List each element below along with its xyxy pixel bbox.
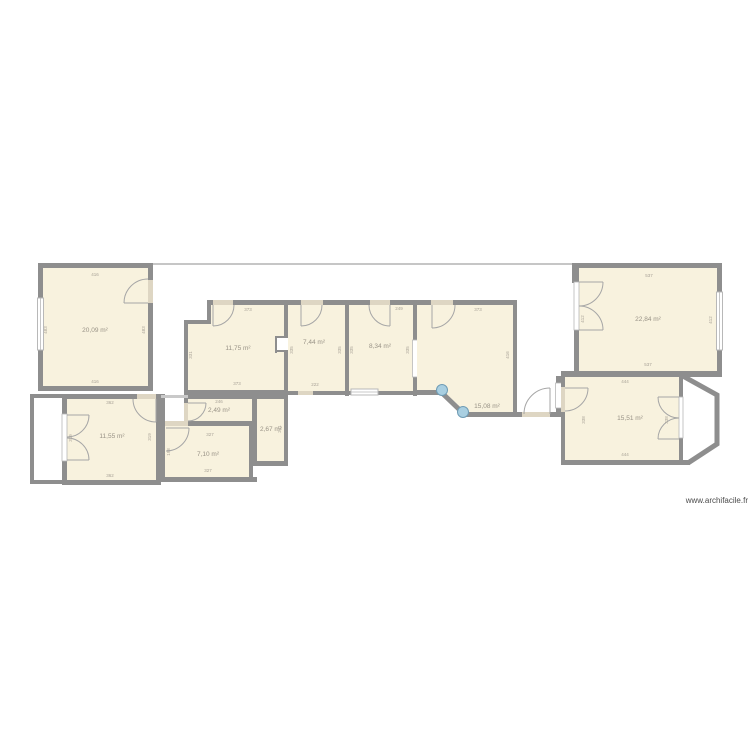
dim-label: 319 bbox=[68, 434, 73, 442]
dim-label: 362 bbox=[106, 473, 114, 478]
dim-label: 373 bbox=[474, 307, 482, 312]
dim-label: 537 bbox=[644, 362, 652, 367]
glass-door-glyph bbox=[437, 385, 448, 396]
door-opening bbox=[522, 412, 550, 417]
window bbox=[38, 298, 44, 350]
room-c-area-label: 2,49 m² bbox=[208, 407, 231, 414]
window bbox=[717, 292, 723, 350]
door-opening bbox=[370, 300, 390, 305]
room-i-area-label: 15,08 m² bbox=[474, 403, 500, 410]
dim-label: 416 bbox=[505, 351, 510, 359]
window bbox=[351, 389, 378, 395]
window bbox=[413, 340, 418, 377]
dim-label: 537 bbox=[645, 273, 653, 278]
room-b-area-label: 11,55 m² bbox=[99, 433, 125, 440]
dim-label: 335 bbox=[405, 346, 410, 354]
door-opening bbox=[165, 421, 188, 426]
room-e-area-label: 7,10 m² bbox=[197, 451, 220, 458]
floor-plan-page: 20,09 m² 416 416 483 483 11,55 m² 362 36… bbox=[0, 0, 750, 750]
dim-label: 412 bbox=[708, 316, 713, 324]
dim-label: 483 bbox=[141, 326, 146, 334]
dim-label: 338 bbox=[664, 416, 669, 424]
room-f: 11,75 m² 373 373 331 bbox=[184, 300, 294, 395]
door-opening bbox=[561, 387, 565, 412]
door-opening bbox=[148, 280, 153, 303]
dim-label: 241 bbox=[277, 425, 282, 433]
dim-label: 246 bbox=[215, 399, 223, 404]
room-g: 7,44 m² 222 335 335 bbox=[284, 300, 349, 396]
dim-label: 335 bbox=[289, 346, 294, 354]
dim-label: 198 bbox=[166, 448, 171, 456]
room-a-area-label: 20,09 m² bbox=[82, 327, 108, 334]
room-l: 22,84 m² 537 537 412 412 bbox=[561, 263, 723, 377]
rooms-cde: 2,49 m² 246 2,67 m² 241 7,10 m² 327 327 … bbox=[161, 394, 288, 482]
dim-label: 483 bbox=[43, 326, 48, 334]
room-l-area-label: 22,84 m² bbox=[635, 316, 661, 323]
dim-label: 335 bbox=[349, 346, 354, 354]
dim-label: 331 bbox=[188, 351, 193, 359]
door-opening bbox=[184, 403, 188, 421]
dim-label: 416 bbox=[91, 272, 99, 277]
glass-door-glyph bbox=[458, 407, 469, 418]
french-door-opening bbox=[574, 282, 579, 330]
room-i-floor bbox=[417, 305, 513, 412]
dim-label: 416 bbox=[91, 379, 99, 384]
dim-label: 362 bbox=[106, 400, 114, 405]
dim-label: 335 bbox=[337, 346, 342, 354]
dim-label: 373 bbox=[233, 381, 241, 386]
room-a: 20,09 m² 416 416 483 483 bbox=[38, 263, 154, 391]
room-h: 8,34 m² 249 335 335 bbox=[345, 300, 418, 396]
door-opening bbox=[301, 300, 323, 305]
french-door-opening bbox=[679, 397, 683, 438]
dim-label: 222 bbox=[311, 382, 319, 387]
floor-plan-canvas: 20,09 m² 416 416 483 483 11,55 m² 362 36… bbox=[0, 0, 750, 750]
room-b: 11,55 m² 362 362 319 319 bbox=[62, 394, 161, 485]
door-opening bbox=[431, 300, 453, 305]
room-n-walls bbox=[30, 394, 66, 484]
terrace-walls bbox=[681, 375, 717, 463]
watermark: www.archifacile.fr bbox=[685, 496, 749, 505]
room-k-area-label: 15,51 m² bbox=[617, 415, 643, 422]
room-k: 15,51 m² 444 444 338 338 bbox=[561, 377, 690, 465]
window bbox=[556, 383, 562, 408]
room-f-area-label: 11,75 m² bbox=[225, 345, 251, 352]
dim-label: 444 bbox=[621, 379, 629, 384]
french-door-opening bbox=[62, 414, 67, 461]
dim-label: 444 bbox=[621, 452, 629, 457]
dim-label: 327 bbox=[204, 468, 212, 473]
door-opening bbox=[213, 300, 233, 305]
dim-label: 338 bbox=[581, 416, 586, 424]
dim-label: 373 bbox=[244, 307, 252, 312]
dim-label: 327 bbox=[206, 432, 214, 437]
dim-label: 319 bbox=[147, 433, 152, 441]
dim-label: 249 bbox=[395, 306, 403, 311]
thin-wall bbox=[161, 395, 188, 398]
door-opening bbox=[137, 394, 156, 399]
dim-label: 412 bbox=[580, 315, 585, 323]
door-arc bbox=[524, 388, 550, 414]
room-h-area-label: 8,34 m² bbox=[369, 343, 392, 350]
corridor-wall bbox=[556, 376, 562, 417]
room-i: 15,08 m² 373 416 bbox=[413, 300, 562, 418]
room-g-area-label: 7,44 m² bbox=[303, 339, 326, 346]
